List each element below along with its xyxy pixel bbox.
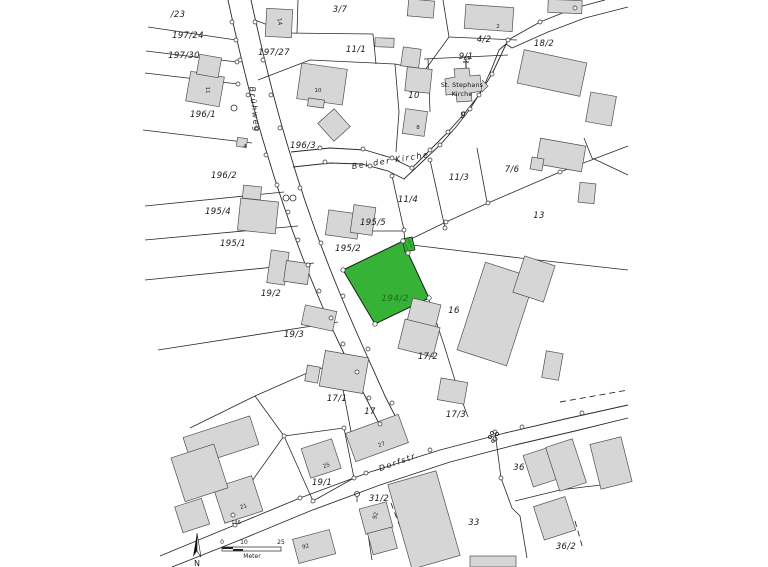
- building: [301, 439, 341, 478]
- parcel-number-label: 17/1: [327, 394, 347, 404]
- parcel-number-label: 31/2: [369, 494, 389, 504]
- survey-point-label: 65: [464, 56, 470, 62]
- parcel-number-label: 197/24: [172, 31, 204, 41]
- building: [405, 67, 432, 93]
- parcel-number-label: 4/2: [477, 35, 492, 45]
- map-canvas: 0 10 25 Meter N St. Stephans Kirche /231…: [0, 0, 768, 567]
- parcel-number-label: 7/6: [505, 165, 520, 175]
- building: [530, 157, 544, 171]
- parcel-number-label: 33: [468, 518, 479, 528]
- building: [542, 351, 563, 381]
- scale-tick-10: 10: [240, 539, 248, 546]
- street-name-label: Dorfstr.: [378, 450, 421, 473]
- cadastral-map: 0 10 25 Meter N St. Stephans Kirche /231…: [0, 0, 768, 567]
- house-number-label: 4: [243, 144, 247, 150]
- open-circle-symbol: [231, 105, 237, 111]
- scale-unit-label: Meter: [243, 553, 261, 560]
- building: [402, 109, 427, 137]
- parcel-number-label: 197/30: [168, 51, 200, 61]
- building: [196, 54, 221, 78]
- building: [464, 4, 514, 31]
- building: [305, 365, 321, 383]
- parcel-number-label: 195/4: [205, 207, 231, 217]
- building: [297, 63, 348, 105]
- house-number-label: 2: [496, 24, 500, 30]
- building: [546, 439, 587, 491]
- parcel-number-label: 19/2: [261, 289, 281, 299]
- parcel-number-label: 195/5: [360, 218, 386, 228]
- street-name-label: Bei der Kirche: [351, 150, 430, 171]
- parcel-number-label: 36/2: [556, 542, 576, 552]
- parcel-number-label: 197/27: [258, 48, 290, 58]
- church-label-line2: Kirche: [452, 91, 473, 98]
- north-arrow: N: [193, 533, 201, 567]
- building: [388, 471, 460, 567]
- parcel-number-label: 36: [513, 463, 525, 473]
- building: [590, 437, 632, 489]
- parcel-number-label: 196/1: [190, 110, 216, 120]
- parcel-number-label: 10: [408, 91, 419, 101]
- parcel-number-label: 19/1: [312, 478, 332, 488]
- parcel-number-label: 195/2: [335, 244, 361, 254]
- building: [536, 138, 586, 172]
- building: [318, 109, 350, 142]
- parcel-number-label: 9: [460, 111, 466, 121]
- open-circle-symbol: [290, 195, 296, 201]
- scale-bar: 0 10 25 Meter: [220, 539, 285, 560]
- building: [534, 497, 576, 540]
- building: [346, 414, 409, 461]
- parcel-number-label: 13: [533, 211, 544, 221]
- survey-point-label: 136: [231, 520, 241, 526]
- building: [470, 556, 516, 567]
- parcel-number-label: 17/3: [446, 410, 466, 420]
- building: [242, 185, 261, 200]
- parcel-number-label: 11/1: [346, 45, 366, 55]
- building: [578, 182, 596, 204]
- church-label-line1: St. Stephans: [441, 82, 483, 89]
- parcel-number-label: 11/3: [449, 173, 469, 183]
- north-label: N: [194, 559, 200, 567]
- house-number-label: 8: [416, 125, 420, 131]
- parcel-number-label: 18/2: [534, 39, 554, 49]
- scale-tick-25: 25: [277, 539, 285, 546]
- street-name-label: Brühweg: [248, 86, 262, 133]
- building: [517, 50, 587, 97]
- house-number-label: 10: [315, 88, 322, 94]
- building: [586, 92, 617, 126]
- parcel-number-label: 3/7: [333, 5, 348, 15]
- parcel-number-label: 196/2: [211, 171, 237, 181]
- building: [375, 38, 394, 48]
- scale-tick-0: 0: [220, 539, 224, 546]
- building: [548, 0, 582, 14]
- highlighted-parcel-label: 194/2: [381, 294, 408, 304]
- parcel-number-label: /23: [170, 10, 186, 20]
- parcel-number-label: 17: [364, 407, 376, 417]
- parcel-number-label: 195/1: [220, 239, 246, 249]
- building: [237, 198, 278, 234]
- building: [175, 498, 210, 532]
- parcel-number-label: 19/3: [284, 330, 304, 340]
- parcel-number-label: 17/2: [418, 352, 438, 362]
- building: [319, 350, 369, 393]
- building: [293, 529, 336, 563]
- parcel-number-label: 196/3: [290, 141, 316, 151]
- building: [437, 378, 467, 404]
- parcel-number-label: 16: [448, 306, 460, 316]
- house-number-label: 11: [204, 87, 210, 94]
- parcel-number-label: 11/4: [398, 195, 418, 205]
- building: [401, 47, 421, 68]
- building: [308, 98, 325, 108]
- open-circle-symbol: [283, 195, 289, 201]
- building: [407, 0, 434, 18]
